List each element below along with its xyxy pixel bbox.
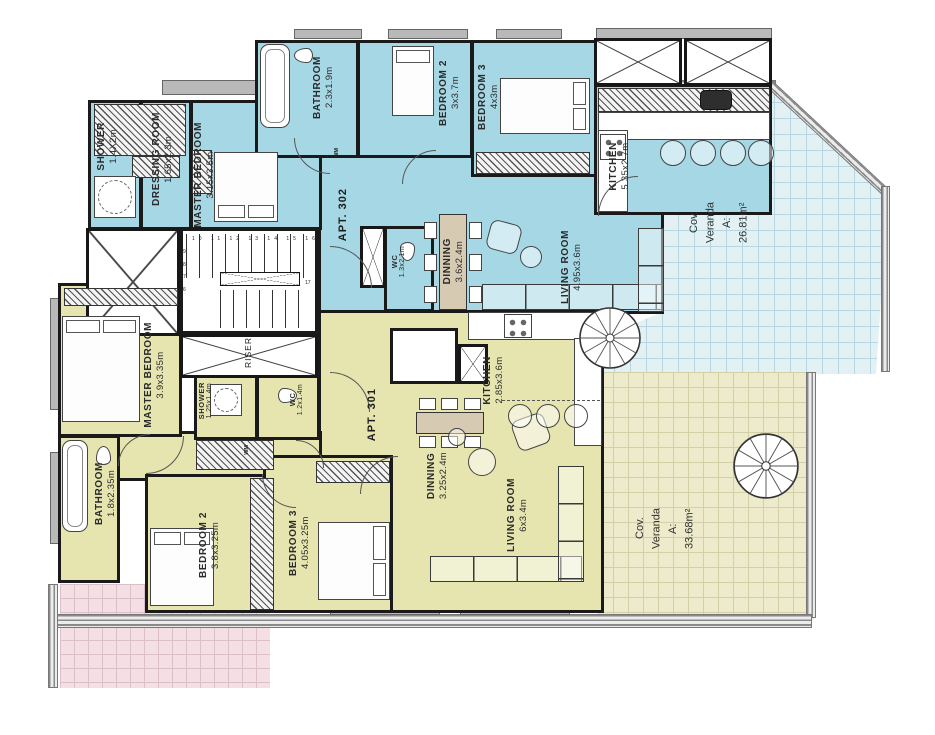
label-301-shower: SHOWER1.25x1.4m (197, 382, 214, 419)
chair (469, 286, 482, 303)
window-lintel-3 (496, 29, 562, 39)
label-301-bedroom2: BEDROOM 23.8x3.25m (198, 512, 221, 578)
stair-numbers-top: 10 11 12 13 14 15 16 (192, 236, 319, 242)
dining-chairs-right (469, 214, 482, 310)
riser-label: RISER (243, 337, 253, 368)
label-302-bathroom: BATHROOM2.3x1.9m (312, 56, 335, 119)
shower-tray-302 (94, 176, 136, 218)
label-301-kitchen: KITCHEN2.85x3.6m (482, 356, 505, 405)
coffee-table-302 (520, 246, 542, 268)
shaft-top-2 (684, 38, 772, 86)
kitchen301-dashed-line (502, 400, 600, 401)
bathtub-301 (62, 440, 88, 532)
railing-veranda301-right (806, 372, 816, 618)
shaft-301 (390, 328, 458, 384)
label-veranda302: Cov.Veranda A:26.81m² (686, 202, 752, 243)
bed-master301 (62, 316, 140, 422)
stool-302-1 (660, 140, 686, 166)
window-lintel-2 (388, 29, 468, 39)
dining-chairs-top (416, 398, 484, 410)
chair (441, 398, 458, 410)
label-302-living: LIVING ROOM4.95x3.6m (560, 230, 583, 304)
chair (464, 398, 481, 410)
label-301-master: MASTER BEDROOM3.9x3.35m (143, 322, 166, 428)
chair (419, 398, 436, 410)
bed-bedroom3-301 (318, 522, 390, 600)
toilet-bath302 (294, 48, 313, 63)
label-301-wc: WC1.2x1.4m (288, 384, 305, 415)
label-301-dinning: DINNING3.25x2.4m (426, 452, 449, 499)
railing-pink-left (48, 584, 58, 688)
floor-plan: 10 11 12 13 14 15 16 9 8 7 6 17 RISER (0, 0, 935, 735)
bathtub-302 (260, 44, 290, 128)
label-302-dressing: DRESSING ROOM1.65x2.3m (151, 112, 174, 206)
closet-master301 (64, 288, 178, 306)
stool-302-3 (720, 140, 746, 166)
closet-corridor301 (196, 440, 274, 470)
stool-301-2 (536, 404, 560, 428)
closet-bedroom3-302 (476, 152, 590, 174)
label-302-bedroom2: BEDROOM 23x3.7m (438, 60, 461, 126)
chair (469, 254, 482, 271)
railing-bottom (56, 614, 812, 628)
coffee-table-301 (468, 448, 496, 476)
stool-302-2 (690, 140, 716, 166)
dining-chairs-left (424, 214, 437, 310)
label-302-shower: SHOWER1.4X2m (96, 122, 119, 171)
label-302-bedroom3: BEDROOM 34x3m (477, 64, 500, 130)
stool-302-4 (748, 140, 774, 166)
railing-right (881, 186, 890, 372)
wm-tag-301: WM (244, 445, 250, 455)
chair (424, 286, 437, 303)
chair (424, 222, 437, 239)
stairs-landing-bar (220, 272, 300, 286)
label-apt302: APT. 302 (337, 188, 349, 241)
shaft-top-1 (594, 38, 682, 86)
label-veranda301: Cov.Veranda A:33.68m² (632, 508, 698, 549)
stove-301 (504, 314, 532, 338)
label-302-kitchen: KITCHEN5.35x2.7m (608, 142, 631, 191)
bed-bedroom2-302 (392, 46, 434, 116)
closet-kitchen302 (598, 88, 770, 112)
sofa-301-right (558, 466, 584, 582)
stool-301-1 (508, 404, 532, 428)
chair (419, 436, 436, 448)
bed-bedroom3-302 (500, 78, 590, 134)
chair (469, 222, 482, 239)
stairs-lower-flight (220, 290, 300, 328)
side-table-301 (448, 428, 466, 446)
spiral-stair-301 (732, 432, 800, 500)
stair-numbers-left: 9 8 7 6 (183, 246, 191, 296)
bed-master302 (214, 152, 278, 222)
label-301-living: LIVING ROOM6x3.4m (506, 478, 529, 552)
shower-tray-301 (210, 384, 242, 416)
label-apt301: APT. 301 (366, 388, 378, 441)
stool-301-3 (564, 404, 588, 428)
label-301-bedroom3: BEDROOM 34.05x3.25m (288, 510, 311, 576)
label-301-bathroom: BATHROOM1.8x2.35m (94, 462, 117, 525)
sink-302 (700, 90, 732, 110)
label-302-dinning: DINNING3.6x2.4m (442, 238, 465, 284)
wm-tag-302: WM (334, 148, 340, 158)
label-302-master: MASTER BEDROOM3.15x3.5m (193, 122, 216, 228)
chair (464, 436, 481, 448)
sofa-302-right (638, 228, 664, 312)
window-lintel-1 (294, 29, 362, 39)
chair (424, 254, 437, 271)
label-302-wc: WC1.3x2.1m (390, 246, 407, 277)
closet-bedroom2-301 (250, 478, 274, 610)
spiral-stair-302 (578, 306, 642, 370)
stair-number-right: 17 (305, 280, 311, 286)
